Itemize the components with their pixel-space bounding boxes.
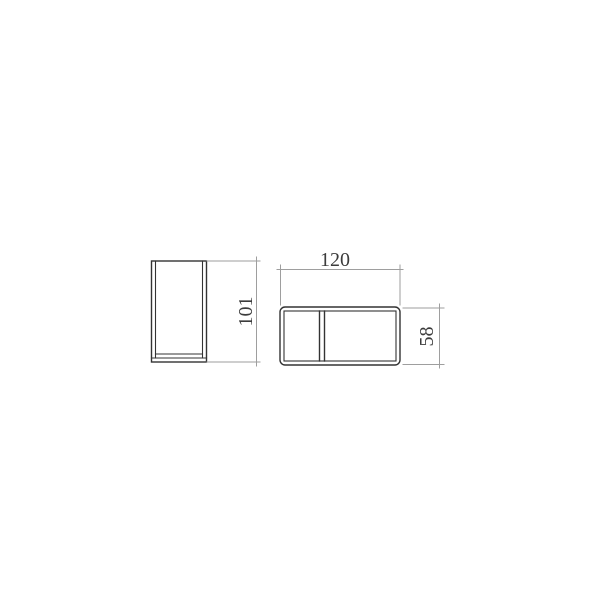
- object-lines: [152, 261, 401, 365]
- front-height-label: 58: [416, 327, 438, 347]
- drawing-canvas: 120 101 58: [0, 0, 600, 600]
- side-height-label: 101: [235, 297, 257, 327]
- front-view-inner-frame: [284, 311, 396, 361]
- front-view: [280, 307, 400, 365]
- side-view: [152, 261, 207, 362]
- front-width-dimension: [277, 265, 403, 305]
- front-width-label: 120: [320, 249, 350, 271]
- side-view-outline: [152, 261, 207, 362]
- front-view-outline: [280, 307, 400, 365]
- technical-drawing: 120 101 58: [0, 0, 600, 600]
- dimension-labels: 120 101 58: [235, 249, 438, 347]
